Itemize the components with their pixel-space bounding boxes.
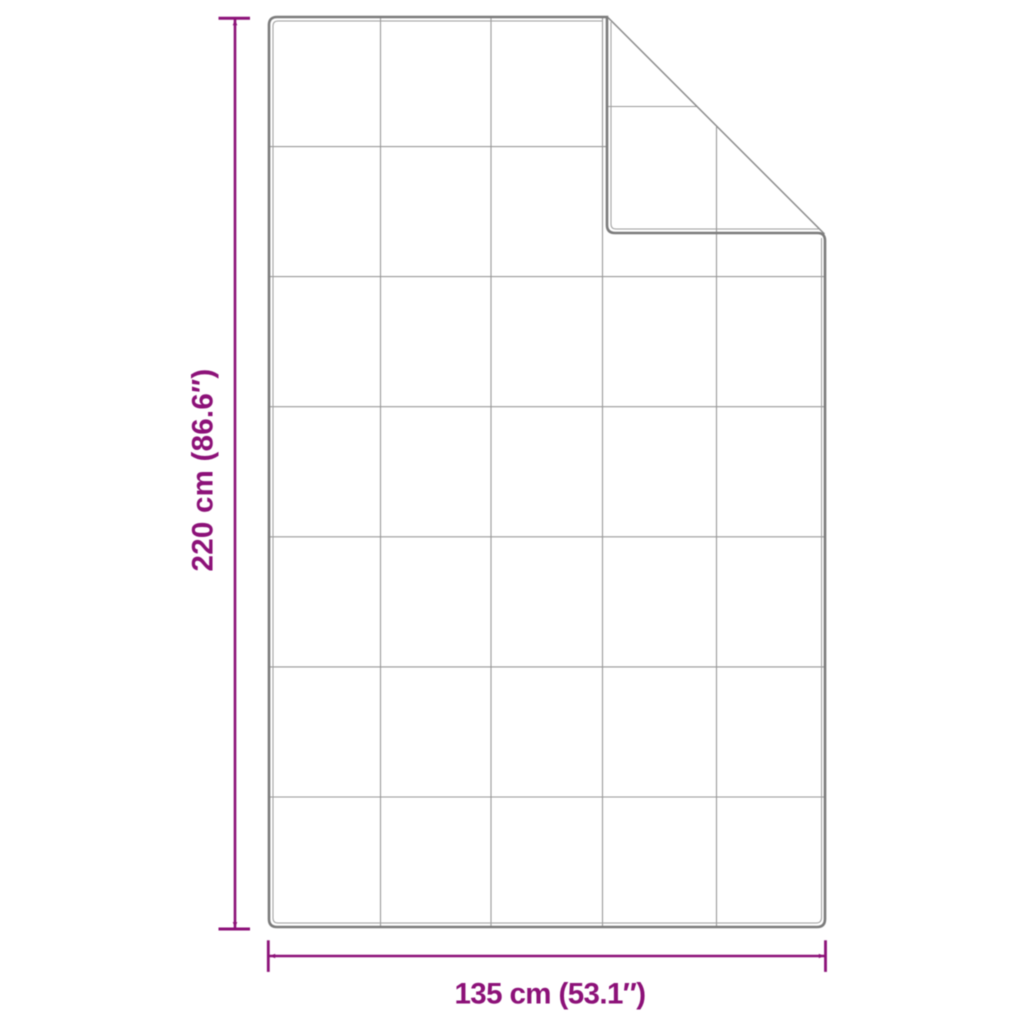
svg-text:220 cm (86.6″): 220 cm (86.6″) (187, 369, 220, 572)
svg-text:135 cm (53.1″): 135 cm (53.1″) (454, 978, 645, 1011)
